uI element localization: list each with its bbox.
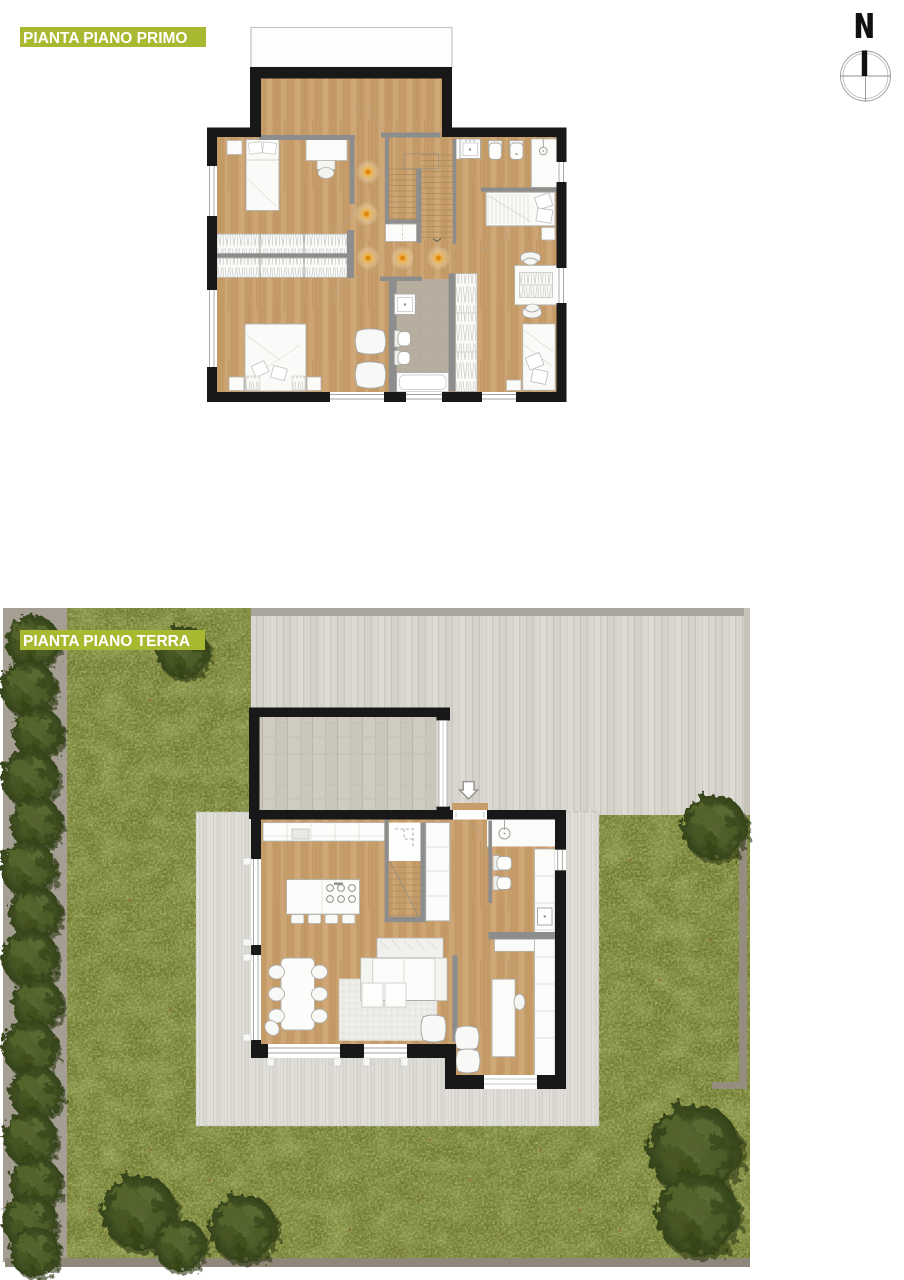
svg-text:PIANTA PIANO TERRA: PIANTA PIANO TERRA — [23, 633, 190, 650]
svg-text:PIANTA PIANO PRIMO: PIANTA PIANO PRIMO — [23, 30, 187, 47]
